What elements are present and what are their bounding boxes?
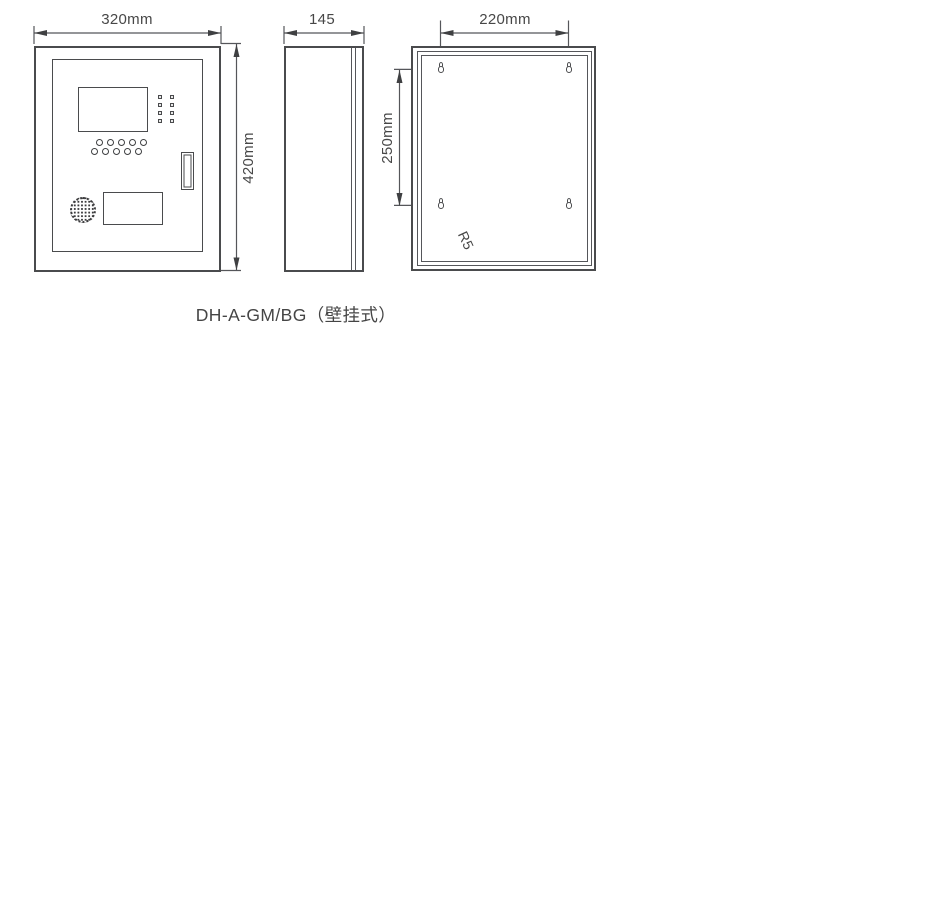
indicator-led (170, 103, 174, 107)
panel-button (124, 148, 131, 155)
arrow-145-right (351, 30, 364, 36)
mounting-keyhole-bottom-left (437, 198, 445, 210)
arrow-145-left (284, 30, 297, 36)
door-lock (181, 152, 194, 190)
indicator-led (158, 119, 162, 123)
dim-label-hole-spacing-horizontal: 220mm (465, 12, 545, 28)
dim-label-height: 420mm (241, 118, 257, 198)
panel-button (102, 148, 109, 155)
keyhole-circle (438, 66, 445, 73)
panel-button (107, 139, 114, 146)
indicator-led (158, 111, 162, 115)
indicator-led (158, 103, 162, 107)
arrow-220-left (441, 30, 454, 36)
indicator-led (170, 119, 174, 123)
arrow-250-bottom (397, 193, 403, 206)
panel-button (113, 148, 120, 155)
indicator-led (170, 95, 174, 99)
dim-label-width: 320mm (87, 12, 167, 28)
speaker-grille (70, 197, 96, 223)
indicator-led (170, 111, 174, 115)
panel-button (118, 139, 125, 146)
panel-button (91, 148, 98, 155)
mounting-keyhole-top-left (437, 62, 445, 74)
arrow-220-right (556, 30, 569, 36)
arrow-250-top (397, 70, 403, 83)
keyhole-circle (566, 202, 573, 209)
panel-button (135, 148, 142, 155)
arrow-420-top (234, 44, 240, 57)
mounting-keyhole-top-right (565, 62, 573, 74)
dim-label-hole-spacing-vertical: 250mm (380, 98, 396, 178)
panel-button (140, 139, 147, 146)
mounting-keyhole-bottom-right (565, 198, 573, 210)
panel-button (129, 139, 136, 146)
back-view-inner-panel (421, 55, 588, 262)
arrow-320-right (208, 30, 221, 36)
technical-drawing-canvas: 320mm 420mm 145 220mm 250mm R5 DH-A-GM/B… (0, 0, 948, 900)
keyhole-circle (566, 66, 573, 73)
arrow-320-left (34, 30, 47, 36)
keyhole-circle (438, 202, 445, 209)
nameplate-rectangle (103, 192, 163, 225)
side-view-door-edge (351, 48, 356, 270)
lcd-display (78, 87, 148, 132)
model-caption: DH-A-GM/BG（壁挂式） (176, 302, 416, 327)
dim-label-depth: 145 (292, 12, 352, 28)
panel-button (96, 139, 103, 146)
arrow-420-bottom (234, 258, 240, 271)
indicator-led (158, 95, 162, 99)
